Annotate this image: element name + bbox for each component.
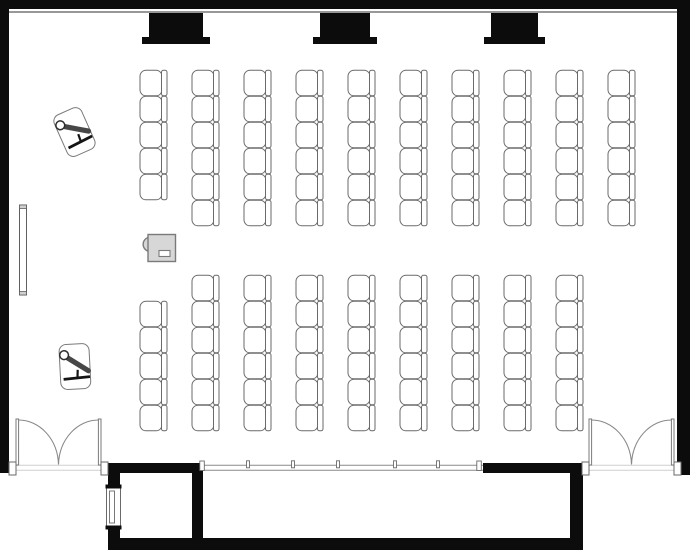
- chair: [556, 148, 583, 174]
- chair: [608, 122, 635, 148]
- chair-seat: [504, 301, 526, 327]
- chair-seat: [244, 301, 266, 327]
- mullion: [337, 461, 340, 468]
- chair-backrest: [370, 379, 376, 405]
- chair-backrest: [422, 70, 428, 96]
- chair-seat: [348, 327, 370, 353]
- door-leaf: [16, 419, 19, 465]
- chair-seat: [400, 301, 422, 327]
- whiteboard-cap: [20, 292, 27, 296]
- chair: [556, 301, 583, 327]
- chair: [504, 405, 531, 431]
- chair-seat: [140, 379, 162, 405]
- chair-seat: [556, 353, 578, 379]
- chair-seat: [348, 122, 370, 148]
- chair: [348, 353, 375, 379]
- chair-backrest: [162, 148, 168, 174]
- bottom-wall-right-solid: [483, 463, 583, 473]
- chair: [400, 200, 427, 226]
- door-leaf: [589, 419, 592, 465]
- chair-backrest: [370, 174, 376, 200]
- chair-seat: [244, 379, 266, 405]
- chair-seat: [296, 405, 318, 431]
- chair-backrest: [266, 174, 272, 200]
- chair: [400, 327, 427, 353]
- chair-backrest: [422, 122, 428, 148]
- chair: [296, 122, 323, 148]
- chair-backrest: [578, 200, 584, 226]
- door-jamb: [9, 462, 16, 475]
- chair: [348, 122, 375, 148]
- chair-seat: [192, 96, 214, 122]
- wall-whiteboard: [20, 205, 27, 295]
- chair-backrest: [370, 405, 376, 431]
- chair-seat: [348, 405, 370, 431]
- chair-backrest: [630, 148, 636, 174]
- vestibule-window: [106, 485, 122, 530]
- chair-seat: [244, 353, 266, 379]
- chair: [504, 379, 531, 405]
- flipchart-easel-icon: [56, 342, 93, 392]
- chair: [296, 327, 323, 353]
- chair-seat: [504, 275, 526, 301]
- chair: [452, 405, 479, 431]
- chair-backrest: [526, 122, 532, 148]
- chair-seat: [504, 70, 526, 96]
- chair: [348, 148, 375, 174]
- chair: [504, 122, 531, 148]
- chair-backrest: [214, 275, 220, 301]
- chair: [140, 70, 167, 96]
- chair: [348, 275, 375, 301]
- chair-backrest: [526, 96, 532, 122]
- chair-backrest: [214, 70, 220, 96]
- chair-backrest: [526, 70, 532, 96]
- chair-seat: [400, 405, 422, 431]
- chair: [192, 200, 219, 226]
- chair-backrest: [214, 174, 220, 200]
- wall-screen-base: [313, 37, 377, 44]
- door-jamb: [582, 462, 589, 475]
- chair: [504, 174, 531, 200]
- chair-seat: [192, 148, 214, 174]
- wall-screen: [313, 13, 377, 44]
- chair-backrest: [162, 327, 168, 353]
- chair-seat: [556, 174, 578, 200]
- chair-backrest: [526, 379, 532, 405]
- chair-backrest: [474, 174, 480, 200]
- chair-seat: [504, 96, 526, 122]
- chair-backrest: [266, 200, 272, 226]
- chair-backrest: [526, 353, 532, 379]
- chair: [348, 379, 375, 405]
- chair: [296, 148, 323, 174]
- chair-backrest: [526, 148, 532, 174]
- chair-backrest: [474, 200, 480, 226]
- floor-plan: [0, 0, 690, 550]
- chair-seat: [400, 148, 422, 174]
- chair-backrest: [422, 275, 428, 301]
- chair: [192, 301, 219, 327]
- chair-seat: [556, 122, 578, 148]
- chair-backrest: [162, 122, 168, 148]
- chair: [192, 327, 219, 353]
- chair: [556, 122, 583, 148]
- chair-backrest: [162, 96, 168, 122]
- chair-seat: [244, 275, 266, 301]
- chair-backrest: [266, 275, 272, 301]
- chair-seat: [400, 353, 422, 379]
- chair: [192, 174, 219, 200]
- chair-seat: [400, 70, 422, 96]
- chair: [140, 405, 167, 431]
- chair: [556, 70, 583, 96]
- chair-seat: [400, 200, 422, 226]
- chair-seat: [348, 174, 370, 200]
- chair-seat: [140, 327, 162, 353]
- chair-seat: [296, 174, 318, 200]
- chair-seat: [140, 148, 162, 174]
- chair: [400, 379, 427, 405]
- chair-seat: [556, 148, 578, 174]
- chair: [452, 379, 479, 405]
- wall-screen-base: [484, 37, 545, 44]
- chair: [244, 301, 271, 327]
- glazing-post: [200, 461, 205, 471]
- chair: [556, 200, 583, 226]
- chair-backrest: [578, 122, 584, 148]
- chair: [504, 148, 531, 174]
- chair-seat: [244, 122, 266, 148]
- chair: [400, 353, 427, 379]
- chair-seat: [140, 96, 162, 122]
- chair: [400, 148, 427, 174]
- chair-backrest: [214, 353, 220, 379]
- chair: [452, 148, 479, 174]
- chair: [192, 275, 219, 301]
- wall-screen: [142, 13, 210, 44]
- chair-backrest: [578, 148, 584, 174]
- chair: [608, 174, 635, 200]
- chair: [296, 275, 323, 301]
- chair-seat: [296, 122, 318, 148]
- chair-backrest: [162, 353, 168, 379]
- projector-vent: [159, 251, 170, 257]
- chair: [296, 70, 323, 96]
- chair-backrest: [266, 327, 272, 353]
- chair-backrest: [630, 122, 636, 148]
- chair: [192, 405, 219, 431]
- chair: [348, 405, 375, 431]
- chair: [504, 301, 531, 327]
- chair-seat: [452, 379, 474, 405]
- chair: [400, 405, 427, 431]
- chair-backrest: [162, 405, 168, 431]
- chair-backrest: [266, 148, 272, 174]
- chair: [244, 174, 271, 200]
- chair-seat: [452, 200, 474, 226]
- chair-backrest: [578, 353, 584, 379]
- chair-seat: [608, 200, 630, 226]
- chair-backrest: [474, 122, 480, 148]
- chair-backrest: [474, 96, 480, 122]
- chair-seat: [504, 405, 526, 431]
- chair-seat: [244, 200, 266, 226]
- chair-seat: [348, 301, 370, 327]
- chair-seat: [556, 96, 578, 122]
- chair-backrest: [474, 275, 480, 301]
- chair-seat: [140, 353, 162, 379]
- chair-backrest: [422, 353, 428, 379]
- chair-backrest: [318, 70, 324, 96]
- chair-backrest: [578, 96, 584, 122]
- chair: [244, 200, 271, 226]
- chair: [556, 379, 583, 405]
- wall-screen-body: [320, 13, 370, 37]
- chair-backrest: [370, 70, 376, 96]
- chair-seat: [140, 301, 162, 327]
- chair-backrest: [474, 327, 480, 353]
- chair: [140, 327, 167, 353]
- chair-backrest: [370, 353, 376, 379]
- chair-seat: [504, 174, 526, 200]
- chair: [400, 70, 427, 96]
- chair-seat: [400, 122, 422, 148]
- chair: [140, 122, 167, 148]
- chair-seat: [556, 405, 578, 431]
- chair-backrest: [214, 327, 220, 353]
- chair-seat: [608, 174, 630, 200]
- chair-seat: [140, 174, 162, 200]
- chair: [504, 200, 531, 226]
- chair-seat: [348, 70, 370, 96]
- chair-backrest: [526, 200, 532, 226]
- chair-backrest: [578, 174, 584, 200]
- chair-seat: [452, 327, 474, 353]
- chair: [452, 301, 479, 327]
- chair-seat: [452, 405, 474, 431]
- chair-backrest: [318, 275, 324, 301]
- chair: [244, 148, 271, 174]
- projector-icon: [143, 235, 175, 262]
- chair-backrest: [266, 122, 272, 148]
- chair-seat: [400, 96, 422, 122]
- chair-backrest: [422, 301, 428, 327]
- chair: [296, 405, 323, 431]
- chair-seat: [556, 275, 578, 301]
- chair: [608, 70, 635, 96]
- chair: [296, 301, 323, 327]
- chair: [140, 174, 167, 200]
- chair: [556, 353, 583, 379]
- chair: [504, 70, 531, 96]
- chair-seat: [192, 200, 214, 226]
- chair-seat: [140, 70, 162, 96]
- chair-seat: [192, 301, 214, 327]
- chair-seat: [296, 96, 318, 122]
- chair-backrest: [474, 70, 480, 96]
- easel-knob: [59, 350, 69, 360]
- outer-wall-left: [0, 0, 9, 473]
- chair-backrest: [266, 379, 272, 405]
- chair-backrest: [630, 96, 636, 122]
- chair-seat: [296, 148, 318, 174]
- chair: [192, 96, 219, 122]
- chair-seat: [348, 148, 370, 174]
- chair-backrest: [370, 200, 376, 226]
- chair-seat: [296, 275, 318, 301]
- chair-backrest: [422, 327, 428, 353]
- whiteboard-body: [20, 205, 27, 295]
- chair-seat: [452, 96, 474, 122]
- chair: [348, 301, 375, 327]
- chair: [452, 200, 479, 226]
- chair-backrest: [474, 379, 480, 405]
- chair-backrest: [370, 122, 376, 148]
- chair-backrest: [578, 275, 584, 301]
- chair-seat: [192, 327, 214, 353]
- chair-backrest: [370, 301, 376, 327]
- chair: [192, 379, 219, 405]
- chair-backrest: [474, 405, 480, 431]
- chair-seat: [504, 353, 526, 379]
- chair-seat: [452, 174, 474, 200]
- chair-backrest: [266, 96, 272, 122]
- glazing-post: [477, 461, 482, 471]
- chair-backrest: [266, 70, 272, 96]
- chair-backrest: [474, 301, 480, 327]
- chair-backrest: [474, 353, 480, 379]
- chair-seat: [348, 353, 370, 379]
- chair-seat: [192, 122, 214, 148]
- chair: [348, 200, 375, 226]
- wall-screen-base: [142, 37, 210, 44]
- chair-backrest: [578, 70, 584, 96]
- chair: [556, 96, 583, 122]
- chair: [348, 327, 375, 353]
- chair-seat: [452, 122, 474, 148]
- chair-backrest: [266, 301, 272, 327]
- chair-backrest: [526, 174, 532, 200]
- chair: [556, 405, 583, 431]
- chair-seat: [192, 405, 214, 431]
- chair: [244, 327, 271, 353]
- chair: [192, 70, 219, 96]
- chair-backrest: [318, 353, 324, 379]
- door-jamb: [101, 462, 108, 475]
- chair-backrest: [162, 174, 168, 200]
- outer-wall-right: [677, 0, 690, 475]
- chair-backrest: [162, 70, 168, 96]
- floor-plan-drawing: [0, 0, 690, 550]
- chair: [504, 96, 531, 122]
- chair-backrest: [318, 174, 324, 200]
- chair: [400, 174, 427, 200]
- chair-backrest: [370, 96, 376, 122]
- chair: [452, 275, 479, 301]
- window-pane: [110, 491, 115, 523]
- vestibule-wall-right: [192, 473, 203, 538]
- wall-screen-body: [149, 13, 203, 37]
- projector-body: [148, 235, 176, 262]
- chair-backrest: [214, 200, 220, 226]
- chair-seat: [296, 301, 318, 327]
- chair: [244, 122, 271, 148]
- chair-seat: [400, 174, 422, 200]
- chair-seat: [452, 353, 474, 379]
- chair-seat: [504, 200, 526, 226]
- chair-backrest: [578, 405, 584, 431]
- chair-backrest: [422, 200, 428, 226]
- chair-seat: [504, 122, 526, 148]
- chair-seat: [556, 70, 578, 96]
- chair: [140, 96, 167, 122]
- chair: [400, 301, 427, 327]
- chair-backrest: [318, 379, 324, 405]
- chair: [452, 70, 479, 96]
- chair: [296, 379, 323, 405]
- window-jamb: [106, 526, 122, 530]
- chair-seat: [452, 275, 474, 301]
- chair: [140, 148, 167, 174]
- chair-backrest: [422, 148, 428, 174]
- chair-seat: [140, 405, 162, 431]
- corridor-wall-right: [570, 473, 583, 550]
- chair: [192, 148, 219, 174]
- chair-seat: [296, 327, 318, 353]
- chair-backrest: [214, 301, 220, 327]
- chair-backrest: [214, 379, 220, 405]
- chair-seat: [348, 96, 370, 122]
- chair: [140, 379, 167, 405]
- chair-backrest: [526, 275, 532, 301]
- chair-seat: [556, 327, 578, 353]
- chair: [244, 405, 271, 431]
- chair-backrest: [266, 353, 272, 379]
- chair-seat: [244, 405, 266, 431]
- chair-seat: [140, 122, 162, 148]
- chair-backrest: [318, 96, 324, 122]
- chair-backrest: [422, 174, 428, 200]
- chair-seat: [608, 122, 630, 148]
- chair: [140, 353, 167, 379]
- chair-seat: [296, 379, 318, 405]
- chair: [452, 174, 479, 200]
- chair-seat: [504, 379, 526, 405]
- chair: [556, 327, 583, 353]
- chair-seat: [556, 379, 578, 405]
- chair: [296, 174, 323, 200]
- mullion: [247, 461, 250, 468]
- bottom-wall-left-solid: [108, 463, 203, 473]
- chair: [296, 200, 323, 226]
- chair-backrest: [162, 379, 168, 405]
- chair-seat: [608, 96, 630, 122]
- chair-backrest: [214, 96, 220, 122]
- chair: [348, 96, 375, 122]
- chair: [244, 275, 271, 301]
- chair-backrest: [318, 148, 324, 174]
- chair-seat: [608, 70, 630, 96]
- chair-backrest: [162, 301, 168, 327]
- door-leaf: [98, 419, 101, 465]
- chair-backrest: [422, 405, 428, 431]
- chair-seat: [348, 200, 370, 226]
- chair-seat: [452, 301, 474, 327]
- chair: [556, 174, 583, 200]
- chair-block-rear: [140, 275, 583, 431]
- chair: [400, 275, 427, 301]
